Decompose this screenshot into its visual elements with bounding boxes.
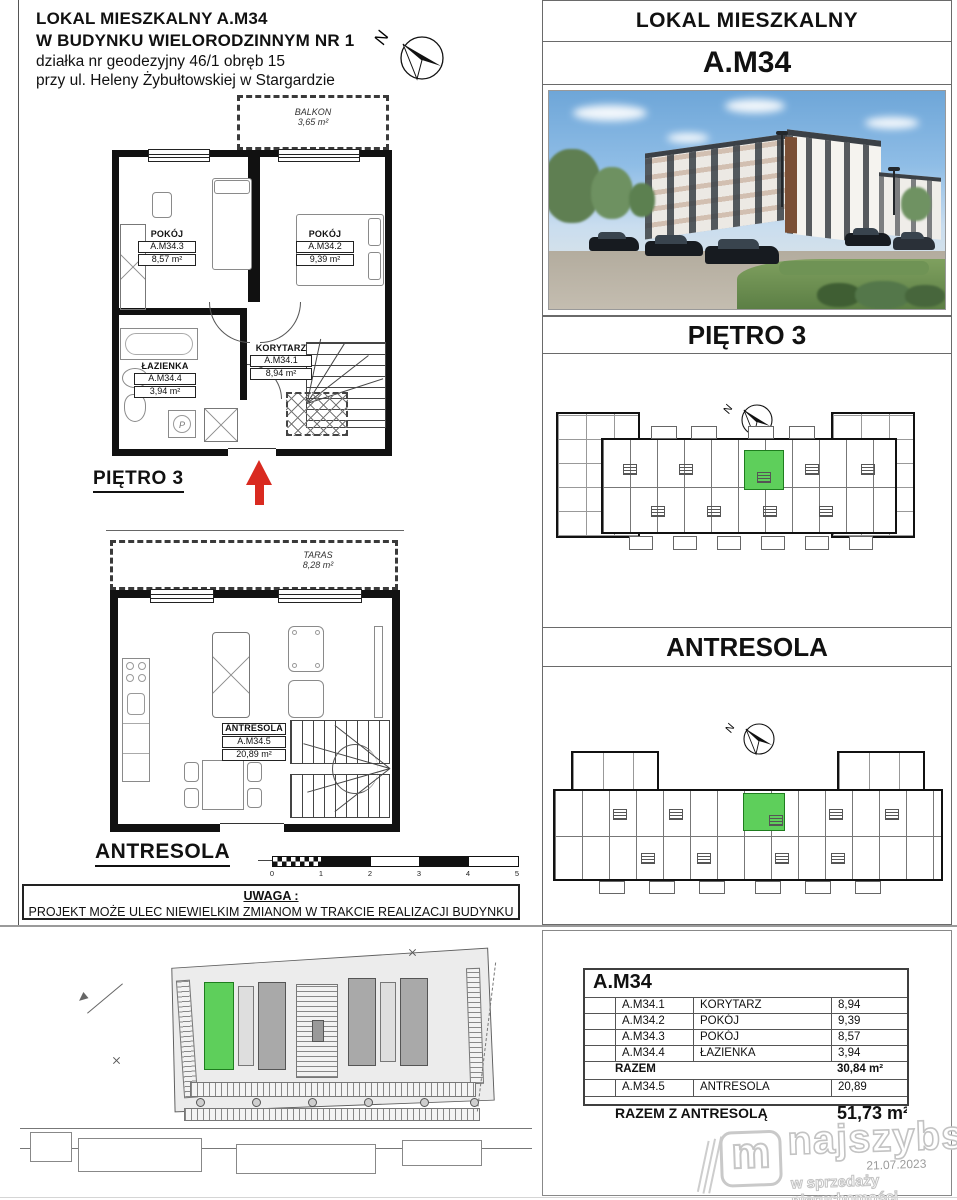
notice-title: UWAGA : <box>24 888 518 904</box>
washing-machine: P <box>168 410 196 438</box>
stair-mark <box>651 506 665 517</box>
header-address: przy ul. Heleny Żybułtowskiej w Stargard… <box>36 71 354 91</box>
balcony-tab <box>699 881 725 894</box>
balcony-tab <box>629 536 653 550</box>
balcony-tab <box>849 536 873 550</box>
terrace-door-window <box>278 589 362 603</box>
corridor-label: KORYTARZ A.M34.1 8,94 m² <box>250 344 312 380</box>
stair-mark <box>805 464 819 475</box>
agency-tagline: w sprzedaży nieruchomości <box>791 1170 957 1200</box>
room-b-label: POKÓJ A.M34.2 9,39 m² <box>296 230 354 266</box>
bush <box>905 285 945 307</box>
stair-fan <box>290 720 390 818</box>
toilet <box>124 394 146 422</box>
stair-void-hatch <box>286 392 348 436</box>
building-photo-box <box>542 84 952 316</box>
north-letter: N <box>725 722 738 735</box>
scale-tick: 0 <box>270 869 274 878</box>
bathtub-inner <box>125 333 193 355</box>
highlighted-unit <box>744 450 784 490</box>
floorplan-antresola: TARAS 8,28 m² <box>96 528 408 840</box>
stair-mark <box>613 809 627 820</box>
balcony-door-window <box>278 149 360 162</box>
north-letter: N <box>723 403 736 416</box>
car <box>705 246 779 264</box>
scale-tick: 3 <box>417 869 421 878</box>
stair-mark <box>669 809 683 820</box>
floor-label-antresola: ANTRESOLA <box>95 840 230 867</box>
table-title: A.M34 <box>585 970 656 997</box>
stair-mark <box>861 464 875 475</box>
stair-mark <box>819 506 833 517</box>
table-row: A.M34.2 POKÓJ 9,39 <box>585 1013 907 1029</box>
armchair <box>288 680 324 718</box>
stair-mark <box>831 853 845 864</box>
pillow <box>368 218 381 246</box>
bathtub <box>120 328 198 360</box>
stair-mark <box>641 853 655 864</box>
grass-strip <box>779 261 929 275</box>
balcony-label: BALKON <box>295 107 332 117</box>
overview-pietro3: N <box>542 353 952 628</box>
panel-title: LOKAL MIESZKALNY <box>542 0 952 42</box>
building-connector <box>238 986 254 1066</box>
agency-logo-icon: m <box>719 1130 783 1188</box>
table-subtotal-row: RAZEM 30,84 m² <box>585 1061 907 1079</box>
balcony-tab <box>748 426 774 439</box>
balcony-tab <box>761 536 785 550</box>
balcony: BALKON 3,65 m² <box>237 95 389 150</box>
agency-watermark: m najszybsi 21.07.2023 w sprzedaży nieru… <box>699 1112 957 1200</box>
window <box>148 149 210 162</box>
north-compass-icon: N <box>725 715 781 759</box>
pillow <box>214 180 250 194</box>
building-block <box>258 982 286 1070</box>
header-building: W BUDYNKU WIELORODZINNYM NR 1 <box>36 30 354 52</box>
area-table: A.M34 A.M34.1 KORYTARZ 8,94 A.M34.2 POKÓ… <box>583 968 909 1106</box>
building-connector <box>380 982 396 1062</box>
north-compass-icon: N <box>372 18 452 88</box>
tv-unit <box>374 626 383 718</box>
table-mezzanine-row: A.M34.5 ANTRESOLA 20,89 <box>585 1079 907 1096</box>
tree <box>901 187 931 221</box>
property-sheet: LOKAL MIESZKALNY A.M34 W BUDYNKU WIELORO… <box>0 0 957 1200</box>
survey-arrowhead <box>76 992 88 1004</box>
dining-table <box>202 760 244 810</box>
chair <box>247 762 262 782</box>
parking-row <box>184 1108 480 1121</box>
entry-door-gap <box>228 448 276 457</box>
overview-antresola: N <box>542 666 952 925</box>
road-line <box>20 1128 532 1129</box>
left-margin-line <box>18 0 19 926</box>
parking-island <box>312 1020 324 1042</box>
shaft <box>204 408 238 442</box>
parking-row <box>190 1082 476 1097</box>
balcony-tab <box>599 881 625 894</box>
north-letter: N <box>372 27 393 47</box>
building-photo <box>548 90 946 310</box>
balcony-tab <box>673 536 697 550</box>
scale-tick: 5 <box>515 869 519 878</box>
desk <box>152 192 172 218</box>
scale-tick: 2 <box>368 869 372 878</box>
site-outline <box>78 1138 202 1172</box>
terrace-area: 8,28 m² <box>303 560 334 570</box>
sofa <box>212 632 250 718</box>
balcony-tab <box>789 426 815 439</box>
car <box>845 233 891 246</box>
kitchen-counter <box>122 658 150 782</box>
bathroom-label: ŁAZIENKA A.M34.4 3,94 m² <box>134 362 196 398</box>
site-outline <box>236 1144 376 1174</box>
stair-mark <box>885 809 899 820</box>
tree <box>591 167 633 219</box>
chair <box>184 762 199 782</box>
balcony-tab <box>855 881 881 894</box>
stair-mark <box>769 815 783 826</box>
building-accent-column <box>785 137 797 234</box>
entry-door-gap <box>220 823 284 832</box>
washer-letter: P <box>173 415 191 433</box>
tree <box>629 183 655 217</box>
car <box>589 237 639 251</box>
terrace-label: TARAS <box>303 550 332 560</box>
building-block <box>400 978 428 1066</box>
notice-box: UWAGA : PROJEKT MOŻE ULEC NIEWIELKIM ZMI… <box>22 884 520 920</box>
stair-mark <box>623 464 637 475</box>
header-plot: działka nr geodezyjny 46/1 obręb 15 <box>36 52 354 72</box>
balcony-tab <box>717 536 741 550</box>
chair <box>184 788 199 808</box>
document-header: LOKAL MIESZKALNY A.M34 W BUDYNKU WIELORO… <box>36 8 354 91</box>
highlighted-building <box>204 982 234 1070</box>
scale-bar: 0 1 2 3 4 5 <box>272 856 518 880</box>
stair-mark <box>763 506 777 517</box>
chair <box>247 788 262 808</box>
table-row: A.M34.3 POKÓJ 8,57 <box>585 1029 907 1045</box>
header-title: LOKAL MIESZKALNY A.M34 <box>36 8 354 30</box>
stair-mark <box>829 809 843 820</box>
balcony-tab <box>805 881 831 894</box>
mezzanine-label: ANTRESOLA A.M34.5 20,89 m² <box>222 722 286 761</box>
room-a-label: POKÓJ A.M34.3 8,57 m² <box>138 230 196 266</box>
agency-brand: najszybsi <box>787 1113 957 1165</box>
floorplan-pietro3: BALKON 3,65 m² P <box>110 92 394 464</box>
balcony-tab <box>651 426 677 439</box>
site-plan <box>20 932 532 1196</box>
terrace: TARAS 8,28 m² <box>110 540 398 590</box>
window <box>150 589 214 603</box>
panel-floor2-title: ANTRESOLA <box>542 627 952 667</box>
scale-tick: 4 <box>466 869 470 878</box>
balcony-tab <box>691 426 717 439</box>
balcony-tab <box>649 881 675 894</box>
balcony-area: 3,65 m² <box>298 117 329 127</box>
car <box>893 237 935 250</box>
stair-mark <box>757 472 771 483</box>
stair-mark <box>707 506 721 517</box>
bush <box>855 281 911 309</box>
building-block <box>348 978 376 1066</box>
table-row: A.M34.4 ŁAZIENKA 3,94 <box>585 1045 907 1061</box>
pillow <box>368 252 381 280</box>
panel-floor1-title: PIĘTRO 3 <box>542 316 952 354</box>
coffee-table <box>288 626 324 672</box>
logo-letter: m <box>731 1133 771 1174</box>
entrance-arrow <box>246 460 272 505</box>
survey-arrow <box>87 983 123 1013</box>
car <box>645 241 703 256</box>
page-bottom-line <box>0 1197 957 1198</box>
balcony-tab <box>755 881 781 894</box>
site-outline <box>402 1140 482 1166</box>
dimension-line <box>106 530 404 531</box>
kitchen-sink <box>127 693 145 715</box>
street-lamp <box>781 131 783 207</box>
section-divider <box>0 925 957 927</box>
stair-mark <box>775 853 789 864</box>
balcony-tab <box>805 536 829 550</box>
floor-label-pietro3: PIĘTRO 3 <box>93 468 184 493</box>
panel-unit: A.M34 <box>542 41 952 85</box>
site-outline <box>30 1132 72 1162</box>
stair-mark <box>679 464 693 475</box>
notice-text: PROJEKT MOŻE ULEC NIEWIELKIM ZMIANOM W T… <box>24 904 518 920</box>
scale-tick: 1 <box>319 869 323 878</box>
table-row: A.M34.1 KORYTARZ 8,94 <box>585 997 907 1013</box>
street-lamp <box>893 167 895 215</box>
stair-mark <box>697 853 711 864</box>
